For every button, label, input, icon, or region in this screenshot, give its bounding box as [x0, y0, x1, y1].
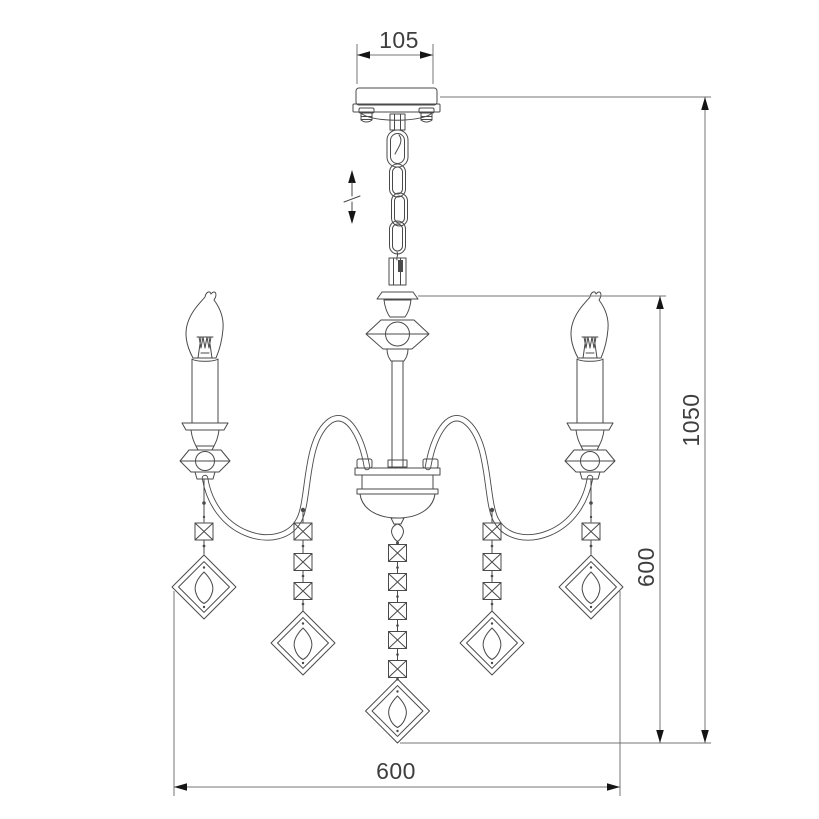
canopy-screw-left: [359, 108, 374, 122]
suspension-chain: [387, 114, 408, 285]
pendant-chain-center: [366, 542, 430, 743]
pendant-chain-far-left: [172, 479, 236, 619]
total-height-label: 1050: [678, 393, 704, 446]
ceiling-canopy: [353, 88, 440, 122]
pendant-chain-far-right: [559, 479, 623, 619]
canopy-screw-right: [419, 108, 434, 122]
dimension-lines: [174, 44, 711, 796]
chandelier-technical-drawing: 105 1050 600 600: [0, 0, 819, 819]
hub-bowl: [355, 459, 440, 542]
candle-right: [565, 292, 615, 479]
dimension-labels: 105 1050 600 600: [376, 27, 704, 784]
height-adjust-icon: [344, 170, 360, 224]
body-drop-height-label: 600: [633, 547, 659, 587]
technical-drawing-page: 105 1050 600 600: [0, 0, 819, 819]
bottom-diameter-label: 600: [376, 758, 416, 784]
center-column: [366, 292, 429, 467]
chandelier-body: [172, 88, 623, 743]
arm-left: [205, 418, 367, 537]
canopy-width-label: 105: [379, 27, 419, 53]
arm-right: [428, 418, 590, 537]
candle-left: [180, 292, 230, 479]
dimension-body-drop-height: [418, 296, 666, 743]
